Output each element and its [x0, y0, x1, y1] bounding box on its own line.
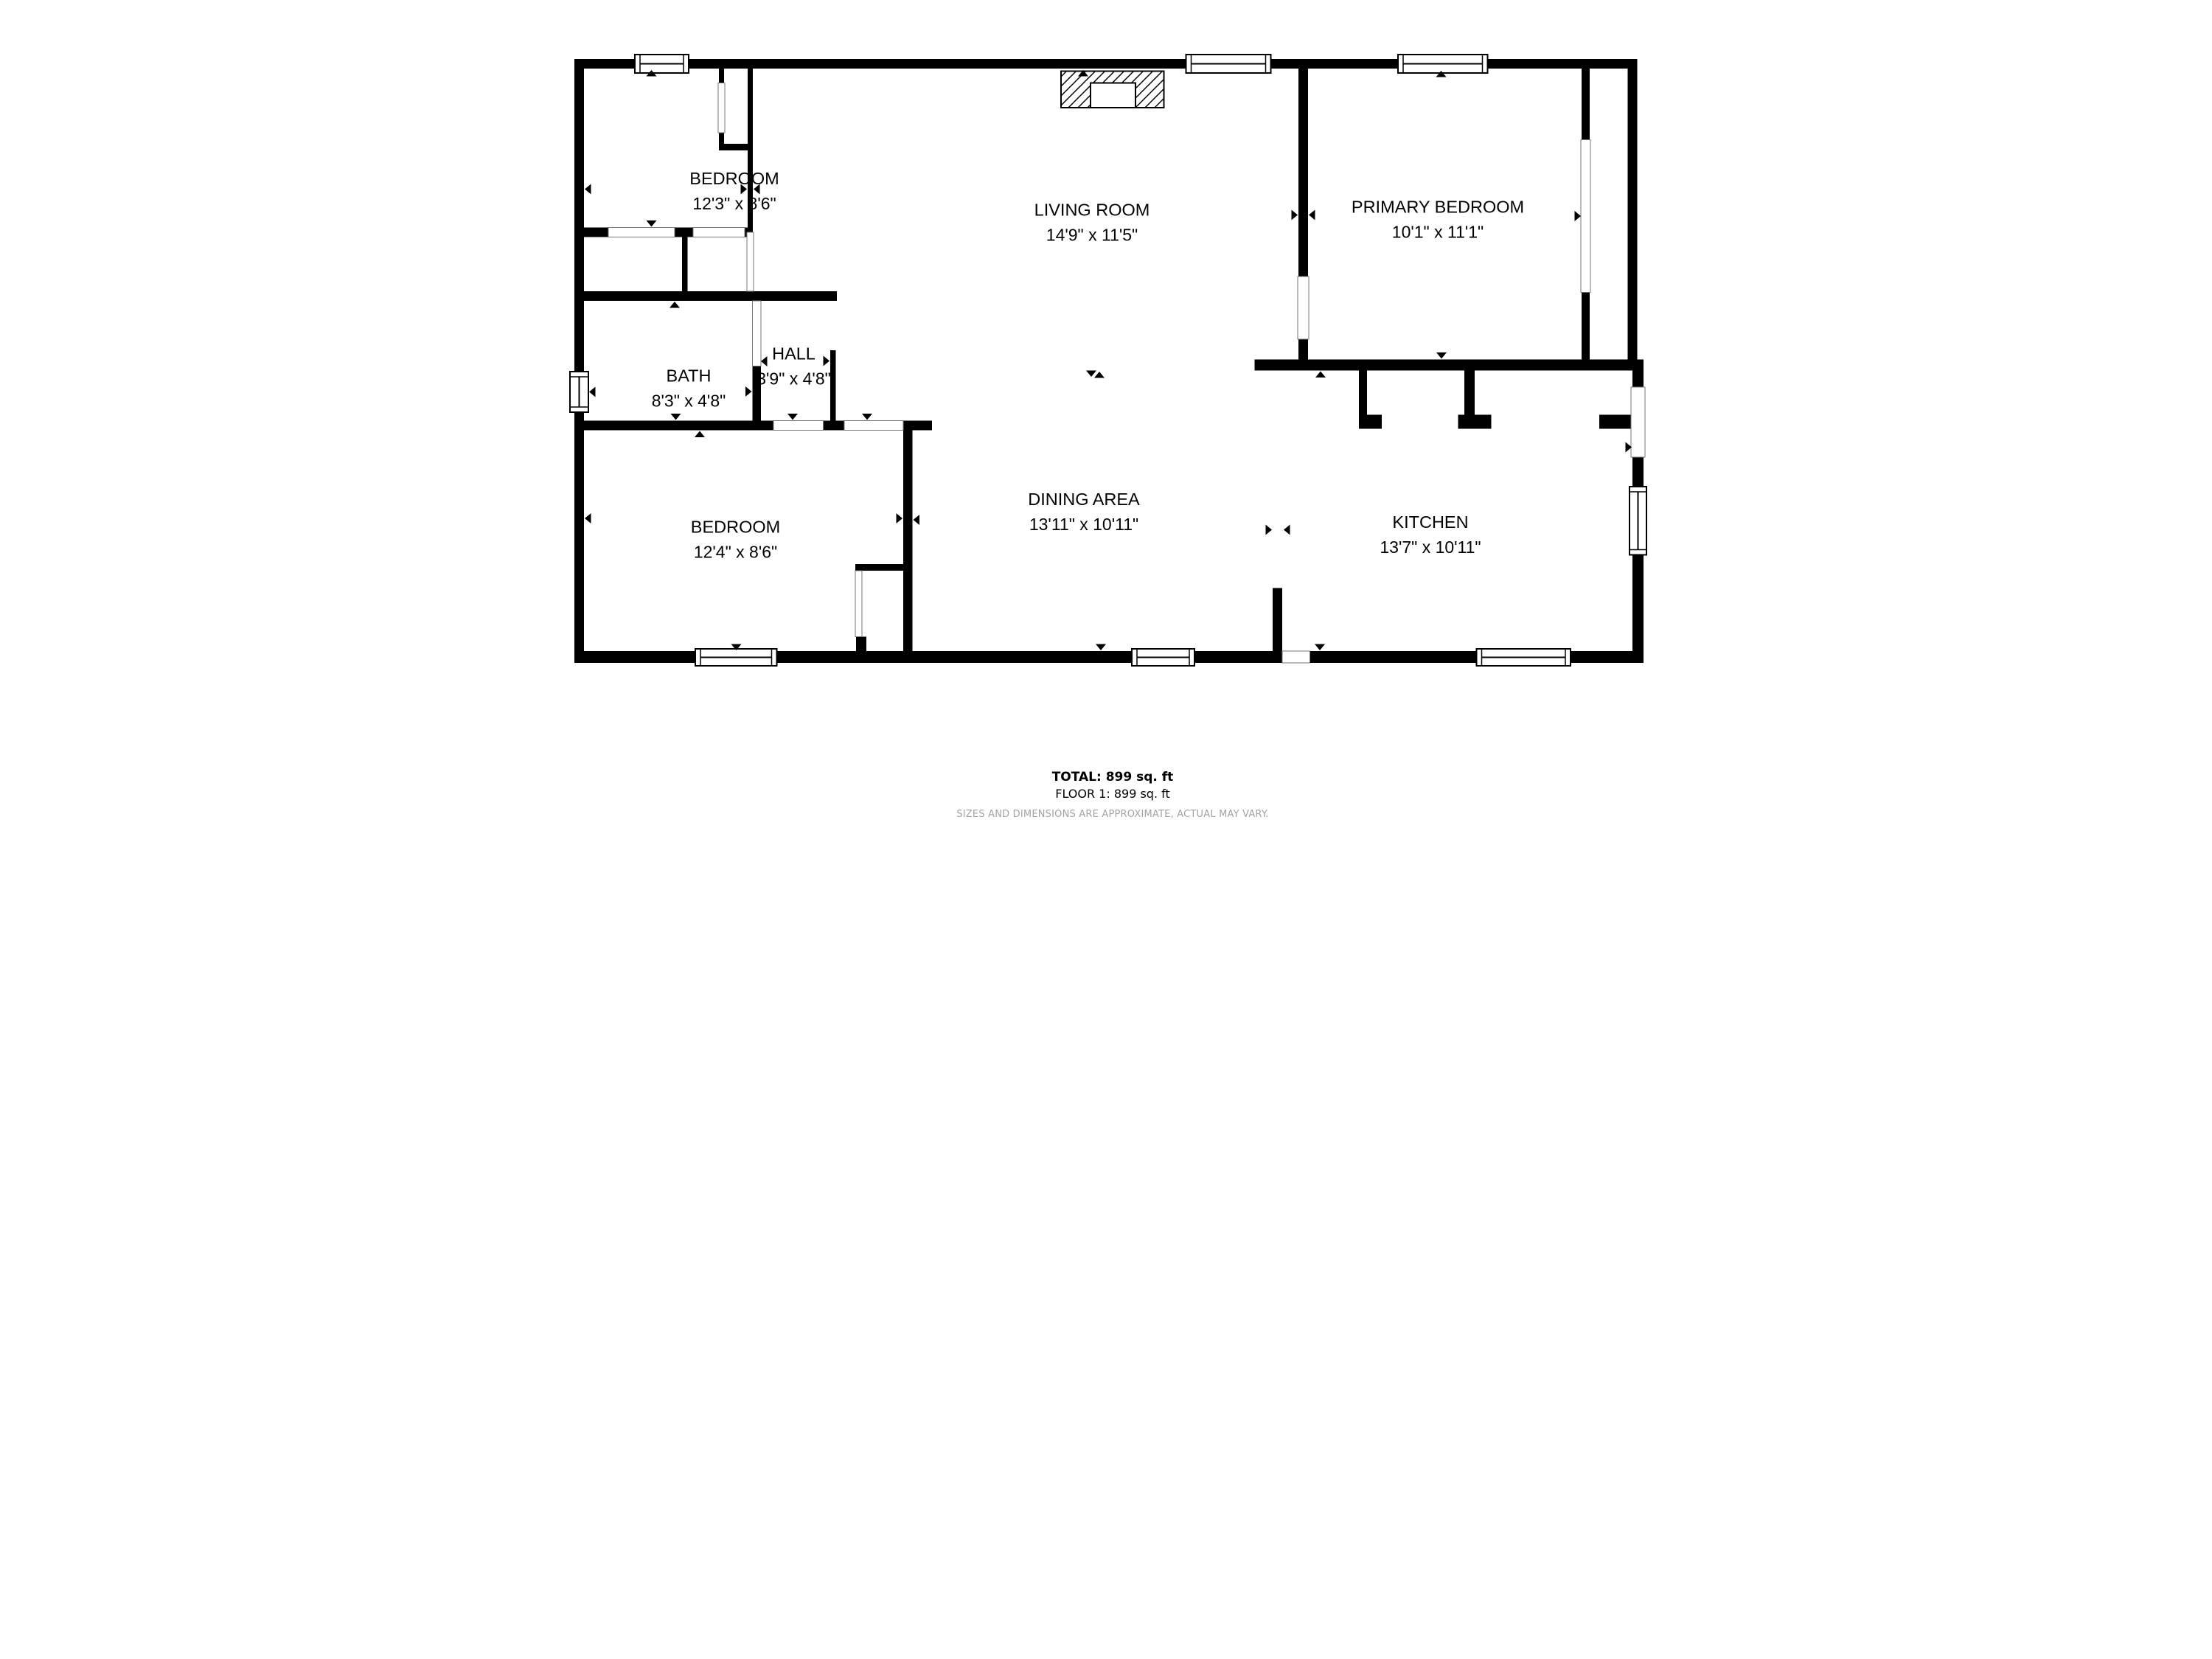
wall-segment [830, 350, 836, 422]
room-label-kitchen: KITCHEN [1392, 512, 1468, 532]
window-icon [1186, 55, 1271, 73]
room-dims-kitchen: 13'7" x 10'11" [1380, 538, 1481, 557]
wall-segment [1255, 360, 1638, 371]
fireplace-icon [1061, 72, 1164, 108]
wall-segment [903, 421, 932, 431]
door-opening-icon [844, 421, 903, 431]
measure-arrow-down-icon [671, 414, 681, 420]
total-area-text: TOTAL: 899 sq. ft [1052, 770, 1174, 785]
measure-arrow-left-icon [1309, 210, 1315, 220]
window-icon [635, 55, 689, 73]
room-dims-hall: 3'9" x 4'8" [757, 369, 831, 389]
measure-arrow-down-icon [1096, 644, 1106, 651]
measure-arrow-right-icon [1292, 210, 1298, 220]
window-icon [570, 372, 588, 412]
wall-segment [1464, 371, 1475, 419]
room-label-living-room: LIVING ROOM [1034, 201, 1150, 220]
door-opening-icon [1581, 140, 1590, 293]
walls-layer [574, 59, 1644, 663]
room-dims-primary-bedroom: 10'1" x 11'1" [1392, 223, 1484, 242]
door-opening-icon [1631, 387, 1645, 457]
measure-arrow-up-icon [1315, 372, 1326, 378]
wall-segment [1458, 415, 1492, 429]
wall-segment [675, 228, 693, 237]
floor-plan-page: BEDROOM12'3" x 8'6"LIVING ROOM14'9" x 11… [553, 0, 1659, 829]
door-opening-icon [1298, 276, 1309, 339]
measure-arrow-up-icon [695, 431, 705, 438]
wall-segment [1628, 59, 1638, 371]
measure-arrow-right-icon [745, 386, 752, 397]
door-opening-icon [855, 571, 862, 637]
room-dims-bedroom-top-left: 12'3" x 8'6" [692, 194, 776, 213]
wall-segment [682, 237, 688, 292]
measure-arrow-down-icon [1315, 644, 1325, 651]
door-opening-icon [753, 301, 762, 366]
door-opening-icon [718, 83, 725, 133]
room-label-bedroom-bottom-left: BEDROOM [691, 518, 780, 537]
fireplace-firebox [1091, 83, 1135, 108]
room-label-dining-area: DINING AREA [1028, 490, 1140, 509]
wall-segment [719, 69, 724, 83]
wall-segment [1359, 415, 1382, 429]
measure-arrow-down-icon [862, 414, 872, 420]
wall-segment [584, 228, 608, 237]
wall-segment [824, 421, 845, 431]
floor-plan-canvas: BEDROOM12'3" x 8'6"LIVING ROOM14'9" x 11… [553, 0, 1659, 829]
room-label-bath: BATH [667, 366, 712, 386]
floor-area-text: FLOOR 1: 899 sq. ft [1055, 787, 1170, 801]
measure-arrow-left-icon [1284, 525, 1290, 535]
wall-segment [855, 564, 913, 571]
window-icon [695, 649, 777, 666]
room-dims-living-room: 14'9" x 11'5" [1046, 226, 1138, 245]
measure-arrow-right-icon [824, 356, 830, 366]
measure-arrow-left-icon [761, 356, 768, 366]
door-opening-icon [1282, 651, 1310, 663]
measure-arrow-right-icon [897, 513, 903, 524]
wall-segment [856, 637, 866, 652]
window-icon [1477, 649, 1571, 666]
door-opening-icon [608, 228, 675, 237]
disclaimer-text: SIZES AND DIMENSIONS ARE APPROXIMATE, AC… [956, 809, 1268, 820]
measure-arrow-left-icon [589, 387, 596, 397]
window-icon [1630, 487, 1646, 555]
wall-segment [1582, 293, 1590, 371]
door-opening-icon [773, 421, 824, 431]
measure-arrow-down-icon [647, 220, 657, 227]
window-icon [1132, 649, 1194, 666]
wall-segment [1273, 588, 1282, 652]
measure-arrow-down-icon [1436, 352, 1447, 359]
room-dims-bedroom-bottom-left: 12'4" x 8'6" [694, 543, 777, 562]
measure-arrow-left-icon [914, 515, 920, 525]
wall-segment [1298, 69, 1308, 276]
wall-segment [1359, 371, 1367, 419]
measure-arrow-left-icon [585, 513, 591, 524]
measure-arrow-right-icon [1266, 525, 1273, 535]
wall-segment [1298, 339, 1308, 371]
wall-segment [903, 431, 913, 652]
room-label-hall: HALL [772, 344, 815, 364]
wall-segment [1582, 69, 1590, 140]
measure-arrow-up-icon [669, 302, 680, 308]
measure-arrow-right-icon [1575, 211, 1582, 221]
wall-segment [1599, 415, 1633, 429]
door-opening-icon [693, 228, 745, 237]
room-label-bedroom-top-left: BEDROOM [689, 169, 779, 188]
measure-arrow-down-icon [787, 414, 798, 420]
wall-segment [584, 291, 837, 301]
room-dims-bath: 8'3" x 4'8" [652, 392, 726, 411]
measure-arrow-up-icon [1094, 372, 1105, 378]
room-label-primary-bedroom: PRIMARY BEDROOM [1352, 198, 1524, 217]
window-icon [1398, 55, 1488, 73]
measure-arrow-down-icon [1086, 371, 1096, 378]
door-opening-icon [747, 232, 754, 291]
measure-arrow-left-icon [585, 184, 591, 195]
wall-segment [574, 59, 584, 663]
wall-segment [584, 421, 773, 431]
room-dims-dining-area: 13'11" x 10'11" [1029, 515, 1138, 534]
